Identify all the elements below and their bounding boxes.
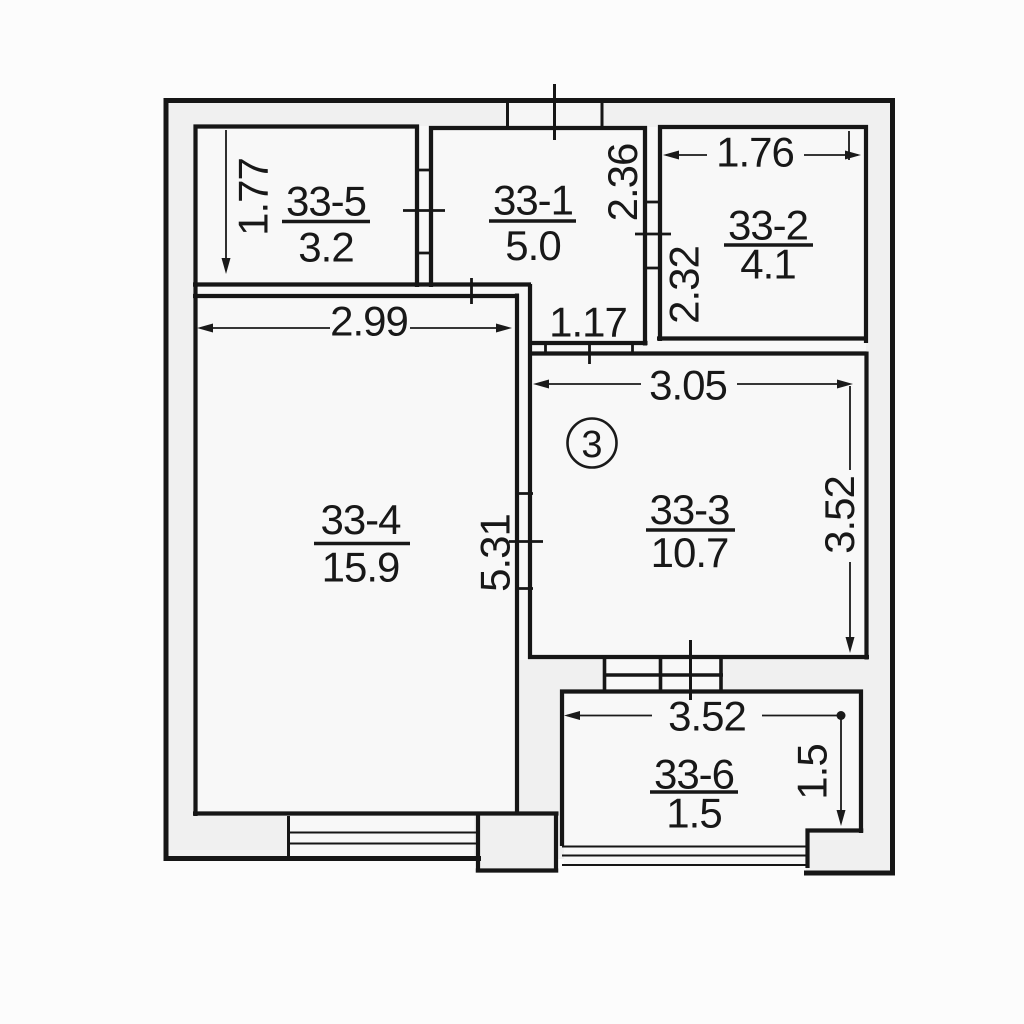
svg-text:33-3: 33-3: [649, 486, 729, 533]
svg-text:15.9: 15.9: [322, 543, 400, 590]
svg-text:1.17: 1.17: [549, 298, 627, 345]
svg-text:3.52: 3.52: [668, 692, 746, 739]
svg-text:3.52: 3.52: [816, 476, 863, 554]
svg-text:2.32: 2.32: [660, 246, 707, 324]
svg-text:1.77: 1.77: [229, 158, 276, 236]
svg-text:3.05: 3.05: [649, 361, 727, 408]
svg-text:2.36: 2.36: [599, 144, 646, 222]
svg-text:1.76: 1.76: [716, 128, 794, 175]
svg-text:10.7: 10.7: [651, 529, 729, 576]
svg-text:2.99: 2.99: [330, 297, 408, 344]
svg-text:1.5: 1.5: [788, 744, 835, 799]
svg-text:5.0: 5.0: [505, 222, 560, 269]
svg-text:3: 3: [581, 424, 602, 466]
svg-text:1.5: 1.5: [666, 789, 721, 836]
svg-text:4.1: 4.1: [740, 240, 795, 287]
svg-text:3.2: 3.2: [298, 223, 353, 270]
svg-text:33-5: 33-5: [286, 177, 366, 224]
svg-text:33-4: 33-4: [320, 496, 401, 543]
svg-text:5.31: 5.31: [471, 514, 518, 592]
svg-text:33-1: 33-1: [493, 176, 573, 223]
